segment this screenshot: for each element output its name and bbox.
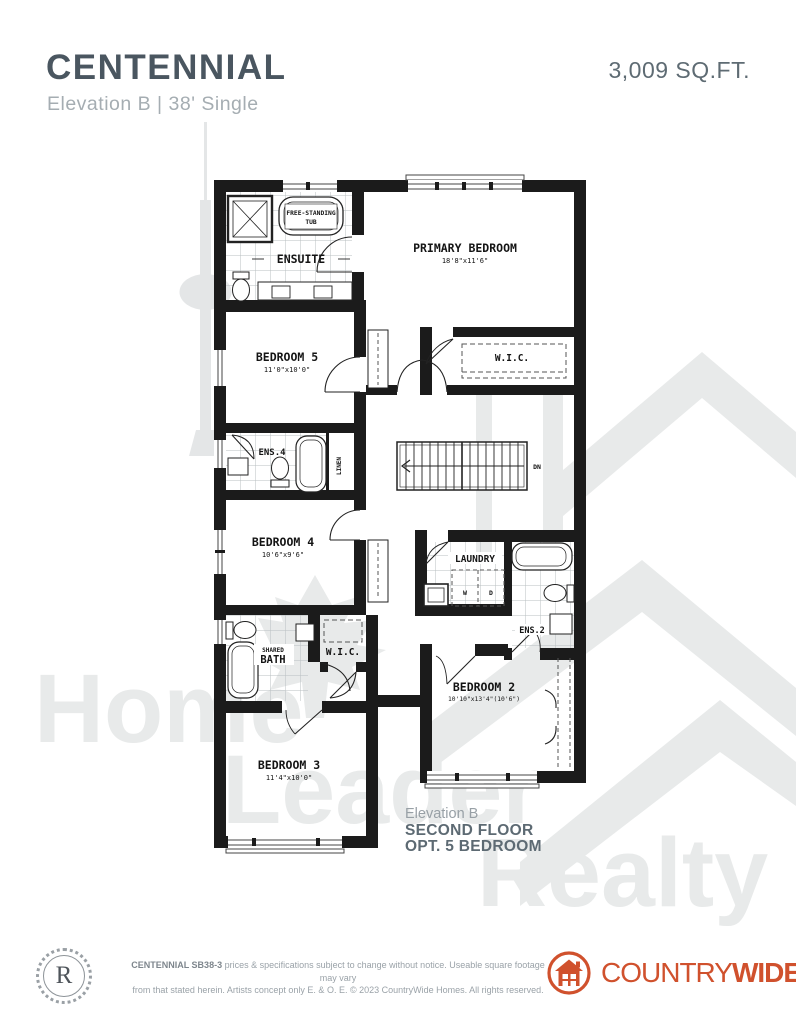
registered-seal: R [36,948,92,1004]
floor-plan: Home Leader Realty [0,0,796,1030]
svg-text:11'4"x10'0": 11'4"x10'0" [266,774,312,782]
svg-text:FREE-STANDING: FREE-STANDING [286,210,335,217]
ens2-tub-icon [512,543,572,570]
caption-option: OPT. 5 BEDROOM [405,839,542,856]
laundry-sink-icon [424,584,448,606]
door-bed5 [325,357,360,392]
ens4-tub-icon [296,436,326,492]
window-ens4-left [214,440,226,468]
bed2-closet [558,658,570,768]
svg-text:TUB: TUB [305,219,317,226]
disclaimer-text: CENTENNIAL SB38-3 prices & specification… [128,959,548,997]
label-wic2: W.I.C. [326,647,360,658]
label-bedroom3: BEDROOM 3 11'4"x10'0" [258,758,320,782]
ensuite-toilet-icon [233,272,250,301]
window-bath-left [214,620,226,644]
label-primary-bedroom: PRIMARY BEDROOM 18'8"x11'6" [413,241,517,265]
svg-text:ENSUITE: ENSUITE [277,252,326,266]
window-bed4-left [214,530,226,574]
ens2-toilet-icon [544,585,574,603]
svg-text:D: D [489,589,493,597]
svg-text:BEDROOM 3: BEDROOM 3 [258,758,320,772]
ens4-toilet-icon [271,457,289,487]
svg-text:BEDROOM 4: BEDROOM 4 [252,535,314,549]
door-bed2-closet-bifold [545,690,556,744]
window-bed2-bottom [425,771,539,788]
svg-text:SHARED: SHARED [262,647,284,654]
hall-closet-1 [368,330,388,388]
svg-text:18'8"x11'6": 18'8"x11'6" [442,257,488,265]
svg-text:BEDROOM 2: BEDROOM 2 [453,680,515,694]
disclaimer-line1: prices & specifications subject to chang… [222,960,545,983]
disclaimer-line2: from that stated herein. Artists concept… [132,985,543,995]
brand-country: COUNTRY [601,957,732,988]
ensuite-vanity-icon [258,282,352,300]
window-bed3-bottom [226,836,344,853]
brand-wide: WIDE [732,957,796,988]
label-ens2: ENS.2 [515,624,549,636]
ens2-vanity-icon [550,614,572,634]
svg-text:BEDROOM 5: BEDROOM 5 [256,350,318,364]
caption-elevation: Elevation B [405,806,542,823]
window-bed5-left [214,350,226,386]
label-stairs-dn: DN [533,463,541,471]
svg-text:10'10"x13'4"(10'6"): 10'10"x13'4"(10'6") [448,696,520,703]
label-bedroom5: BEDROOM 5 11'0"x10'0" [256,350,318,374]
window-primary-top [406,175,524,192]
label-tub: FREE-STANDING TUB [285,204,337,229]
svg-text:BATH: BATH [260,654,285,666]
caption-floor: SECOND FLOOR [405,823,542,840]
bath-toilet-icon [226,622,256,640]
window-ensuite-top [283,180,337,192]
svg-text:ENS.2: ENS.2 [519,626,545,636]
door-bed4 [330,510,360,540]
label-shared-bath: SHARED BATH [254,644,294,666]
bath-vanity-icon [296,624,314,641]
registered-seal-letter: R [43,955,85,997]
svg-text:10'6"x9'6": 10'6"x9'6" [262,551,304,559]
svg-text:11'0"x10'0": 11'0"x10'0" [264,366,310,374]
countrywide-wordmark: COUNTRYWIDE [601,957,796,989]
staircase [397,442,527,490]
countrywide-logo: COUNTRYWIDE [546,950,796,996]
label-linen: LINEN [336,457,343,475]
disclaimer-model-code: CENTENNIAL SB38-3 [131,960,222,970]
bath-tub-icon [228,642,258,698]
svg-text:PRIMARY BEDROOM: PRIMARY BEDROOM [413,241,517,255]
hall-closet-2 [368,540,388,602]
countrywide-house-icon [546,950,592,996]
ens4-vanity-icon [228,458,248,475]
plan-caption: Elevation B SECOND FLOOR OPT. 5 BEDROOM [405,806,542,856]
label-ens4: ENS.4 [258,448,286,458]
label-bedroom2: BEDROOM 2 10'10"x13'4"(10'6") [448,680,520,703]
label-bedroom4: BEDROOM 4 10'6"x9'6" [252,535,314,559]
svg-text:W: W [463,589,467,597]
shower-icon [228,196,272,242]
label-wic1: W.I.C. [495,353,529,364]
svg-text:LAUNDRY: LAUNDRY [455,554,495,565]
